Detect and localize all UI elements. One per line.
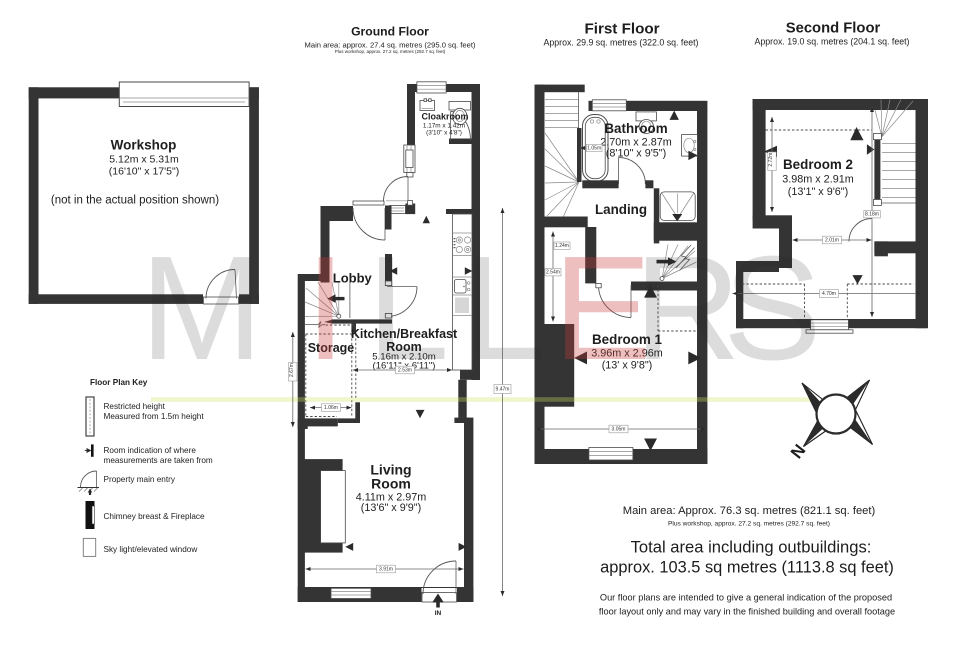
svg-text:approx. 103.5 sq metres (1113.: approx. 103.5 sq metres (1113.8 sq feet) [600, 559, 894, 577]
svg-text:2.01m: 2.01m [825, 238, 839, 244]
svg-text:2.53m: 2.53m [398, 368, 412, 374]
svg-text:Restricted height: Restricted height [104, 402, 166, 411]
svg-text:L: L [463, 226, 545, 391]
svg-text:First Floor: First Floor [584, 21, 659, 38]
svg-text:5.12m x 5.31m: 5.12m x 5.31m [109, 154, 179, 166]
svg-text:Our floor plans are intended t: Our floor plans are intended to give a g… [600, 593, 892, 603]
svg-text:1.06m: 1.06m [324, 405, 338, 411]
svg-text:M: M [140, 226, 263, 391]
svg-text:(16'10" x 17'5"): (16'10" x 17'5") [109, 166, 179, 178]
svg-text:(13'1" x 9'6"): (13'1" x 9'6") [788, 186, 848, 198]
svg-text:Room: Room [371, 476, 411, 492]
svg-text:Cloakroom: Cloakroom [421, 112, 468, 122]
svg-text:Main area: Approx. 76.3 sq. me: Main area: Approx. 76.3 sq. metres (821.… [623, 505, 876, 517]
svg-text:(8'10" x 9'5"): (8'10" x 9'5") [606, 148, 666, 160]
svg-text:Ground Floor: Ground Floor [351, 25, 429, 39]
svg-text:Workshop: Workshop [111, 138, 177, 153]
svg-text:Plus workshop, approx. 27.2 sq: Plus workshop, approx. 27.2 sq. metres (… [668, 521, 830, 528]
svg-text:1.05m: 1.05m [587, 145, 601, 151]
svg-text:Landing: Landing [595, 202, 647, 217]
svg-text:(13'6" x 9'9"): (13'6" x 9'9") [361, 502, 421, 514]
svg-text:Chimney breast & Fireplace: Chimney breast & Fireplace [104, 512, 205, 521]
svg-text:3.98m x 2.91m: 3.98m x 2.91m [782, 174, 853, 186]
svg-text:IN: IN [435, 610, 442, 617]
svg-text:2.67m: 2.67m [289, 363, 295, 377]
svg-text:floor layout only and may vary: floor layout only and may vary in the fi… [599, 607, 895, 617]
svg-text:(3'10" x 4'8"): (3'10" x 4'8") [426, 130, 462, 137]
svg-text:9.47m: 9.47m [496, 387, 510, 393]
svg-text:3.91m: 3.91m [379, 567, 393, 573]
svg-text:Approx. 29.9 sq. metres (322.0: Approx. 29.9 sq. metres (322.0 sq. feet) [543, 38, 698, 48]
svg-text:Plus workshop, approx. 27.2 sq: Plus workshop, approx. 27.2 sq. metres (… [335, 49, 446, 54]
svg-text:Property main entry: Property main entry [104, 475, 176, 484]
svg-text:8.18m: 8.18m [865, 212, 879, 218]
svg-text:I: I [305, 226, 346, 391]
svg-text:S: S [723, 226, 822, 391]
svg-text:2.72m: 2.72m [768, 153, 774, 167]
svg-text:Second Floor: Second Floor [786, 21, 881, 37]
svg-text:Bedroom 2: Bedroom 2 [783, 157, 853, 172]
svg-text:Total area including outbuild: Total area including outbuildings: [631, 538, 872, 557]
svg-text:Room indication of where: Room indication of where [104, 446, 197, 455]
svg-text:Measured from 1.5m height: Measured from 1.5m height [104, 412, 205, 421]
svg-text:1.17m x 1.42m: 1.17m x 1.42m [423, 123, 465, 130]
svg-text:Bathroom: Bathroom [604, 121, 667, 136]
svg-text:3.05m: 3.05m [612, 427, 626, 433]
svg-text:Floor Plan Key: Floor Plan Key [90, 378, 148, 387]
svg-text:4.70m: 4.70m [822, 291, 836, 297]
svg-text:Approx. 19.0 sq. metres (204.1: Approx. 19.0 sq. metres (204.1 sq. feet) [754, 37, 909, 47]
svg-text:Sky light/elevated window: Sky light/elevated window [104, 545, 198, 554]
svg-text:(not in the actual position sh: (not in the actual position shown) [51, 195, 219, 207]
svg-text:measurements are taken from: measurements are taken from [104, 456, 213, 465]
